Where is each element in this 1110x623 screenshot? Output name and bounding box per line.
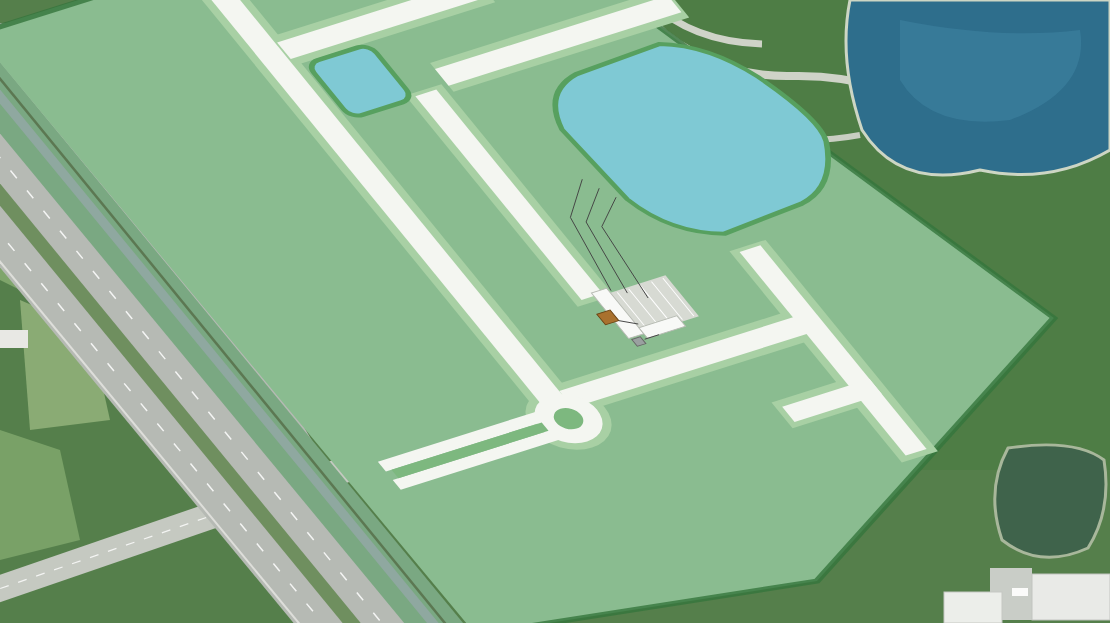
scene bbox=[0, 0, 1110, 623]
aerial-site-plan-image bbox=[0, 0, 1110, 623]
aerial-pond bbox=[995, 445, 1106, 557]
